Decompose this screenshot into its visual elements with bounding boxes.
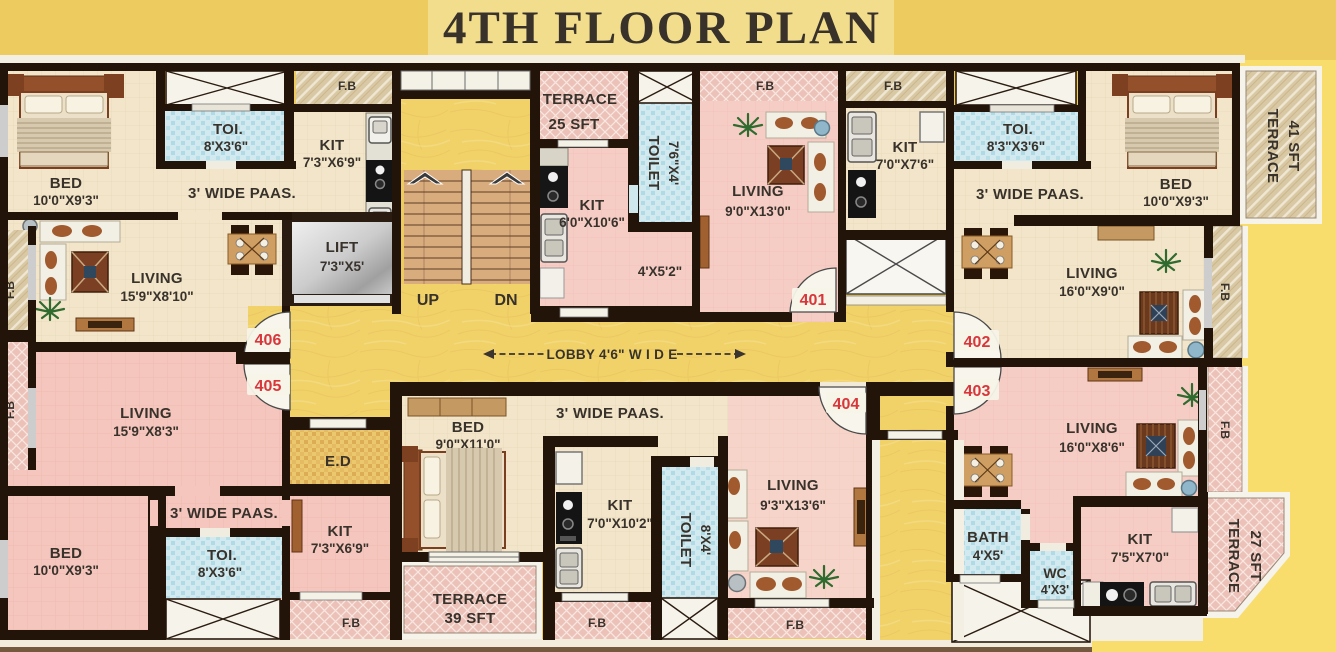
- svg-text:LIVING: LIVING: [732, 183, 784, 200]
- svg-text:25 SFT: 25 SFT: [549, 116, 600, 133]
- svg-text:8'3"X3'6": 8'3"X3'6": [987, 139, 1045, 154]
- svg-text:8'X4': 8'X4': [698, 525, 713, 555]
- svg-text:LOBBY 4'6" W I D E: LOBBY 4'6" W I D E: [546, 347, 677, 362]
- svg-text:3' WIDE PAAS.: 3' WIDE PAAS.: [188, 185, 296, 202]
- svg-text:15'9"X8'3": 15'9"X8'3": [113, 424, 179, 439]
- svg-text:10'0"X9'3": 10'0"X9'3": [33, 563, 99, 578]
- svg-text:TOILET: TOILET: [677, 513, 694, 568]
- svg-text:8'X3'6": 8'X3'6": [204, 139, 248, 154]
- svg-text:3' WIDE PAAS.: 3' WIDE PAAS.: [170, 505, 278, 522]
- svg-text:3' WIDE PAAS.: 3' WIDE PAAS.: [976, 186, 1084, 203]
- svg-text:16'0"X8'6": 16'0"X8'6": [1059, 440, 1125, 455]
- svg-text:LIVING: LIVING: [120, 405, 172, 422]
- svg-text:402: 402: [964, 334, 991, 351]
- svg-text:403: 403: [964, 383, 991, 400]
- svg-text:E.D: E.D: [325, 453, 351, 470]
- svg-text:TOI.: TOI.: [1003, 121, 1033, 138]
- svg-text:LIFT: LIFT: [326, 239, 359, 256]
- svg-text:6'0"X10'6": 6'0"X10'6": [559, 215, 625, 230]
- svg-text:LIVING: LIVING: [1066, 265, 1118, 282]
- svg-text:TERRACE: TERRACE: [433, 591, 508, 608]
- svg-text:404: 404: [833, 396, 860, 413]
- svg-text:16'0"X9'0": 16'0"X9'0": [1059, 284, 1125, 299]
- svg-text:KIT: KIT: [579, 197, 604, 214]
- svg-text:7'3"X6'9": 7'3"X6'9": [303, 155, 361, 170]
- svg-text:4'X5'2": 4'X5'2": [638, 264, 682, 279]
- svg-text:F.B: F.B: [884, 79, 902, 93]
- svg-text:10'0"X9'3": 10'0"X9'3": [1143, 194, 1209, 209]
- svg-text:LIVING: LIVING: [1066, 420, 1118, 437]
- svg-text:BATH: BATH: [967, 529, 1009, 546]
- svg-text:LIVING: LIVING: [131, 270, 183, 287]
- svg-text:DN: DN: [494, 292, 517, 309]
- svg-text:KIT: KIT: [1127, 531, 1152, 548]
- svg-text:F.B: F.B: [786, 618, 804, 632]
- svg-text:F.B: F.B: [1218, 283, 1232, 301]
- svg-text:406: 406: [255, 332, 282, 349]
- svg-text:KIT: KIT: [319, 137, 344, 154]
- svg-text:KIT: KIT: [607, 497, 632, 514]
- svg-text:BED: BED: [1160, 176, 1193, 193]
- svg-text:F.B: F.B: [588, 616, 606, 630]
- svg-text:9'3"X13'6": 9'3"X13'6": [760, 498, 826, 513]
- svg-text:F.B: F.B: [756, 79, 774, 93]
- svg-text:BED: BED: [50, 175, 83, 192]
- svg-text:39 SFT: 39 SFT: [445, 610, 496, 627]
- svg-text:F.B: F.B: [338, 79, 356, 93]
- svg-text:TERRACE: TERRACE: [1264, 109, 1281, 184]
- svg-text:7'0"X7'6": 7'0"X7'6": [876, 157, 934, 172]
- svg-text:7'3"X5': 7'3"X5': [320, 259, 364, 274]
- svg-text:TERRACE: TERRACE: [543, 91, 618, 108]
- svg-text:4TH FLOOR PLAN: 4TH FLOOR PLAN: [443, 2, 881, 54]
- svg-text:15'9"X8'10": 15'9"X8'10": [120, 289, 193, 304]
- svg-text:KIT: KIT: [892, 139, 917, 156]
- svg-text:TOI.: TOI.: [207, 547, 237, 564]
- svg-text:BED: BED: [452, 419, 485, 436]
- svg-text:7'0"X10'2": 7'0"X10'2": [587, 516, 653, 531]
- svg-text:TOI.: TOI.: [213, 121, 243, 138]
- svg-text:WC: WC: [1043, 565, 1066, 581]
- svg-text:27 SFT: 27 SFT: [1247, 531, 1264, 582]
- svg-text:7'5"X7'0": 7'5"X7'0": [1111, 550, 1169, 565]
- svg-text:4'X5': 4'X5': [973, 548, 1003, 563]
- svg-text:F.B: F.B: [342, 616, 360, 630]
- svg-text:TOILET: TOILET: [645, 136, 662, 191]
- svg-text:10'0"X9'3": 10'0"X9'3": [33, 193, 99, 208]
- svg-text:KIT: KIT: [327, 523, 352, 540]
- svg-text:41 SFT: 41 SFT: [1285, 121, 1302, 172]
- svg-text:7'6"X4': 7'6"X4': [666, 141, 681, 185]
- svg-text:405: 405: [255, 378, 282, 395]
- svg-text:7'3"X6'9": 7'3"X6'9": [311, 541, 369, 556]
- svg-text:LIVING: LIVING: [767, 477, 819, 494]
- svg-text:401: 401: [800, 292, 827, 309]
- svg-text:9'0"X13'0": 9'0"X13'0": [725, 204, 791, 219]
- svg-text:8'X3'6": 8'X3'6": [198, 565, 242, 580]
- svg-text:3' WIDE PAAS.: 3' WIDE PAAS.: [556, 405, 664, 422]
- svg-text:BED: BED: [50, 545, 83, 562]
- svg-text:TERRACE: TERRACE: [1225, 519, 1242, 594]
- svg-text:F.B: F.B: [1218, 421, 1232, 439]
- svg-text:4'X3': 4'X3': [1041, 583, 1069, 597]
- svg-text:UP: UP: [417, 292, 440, 309]
